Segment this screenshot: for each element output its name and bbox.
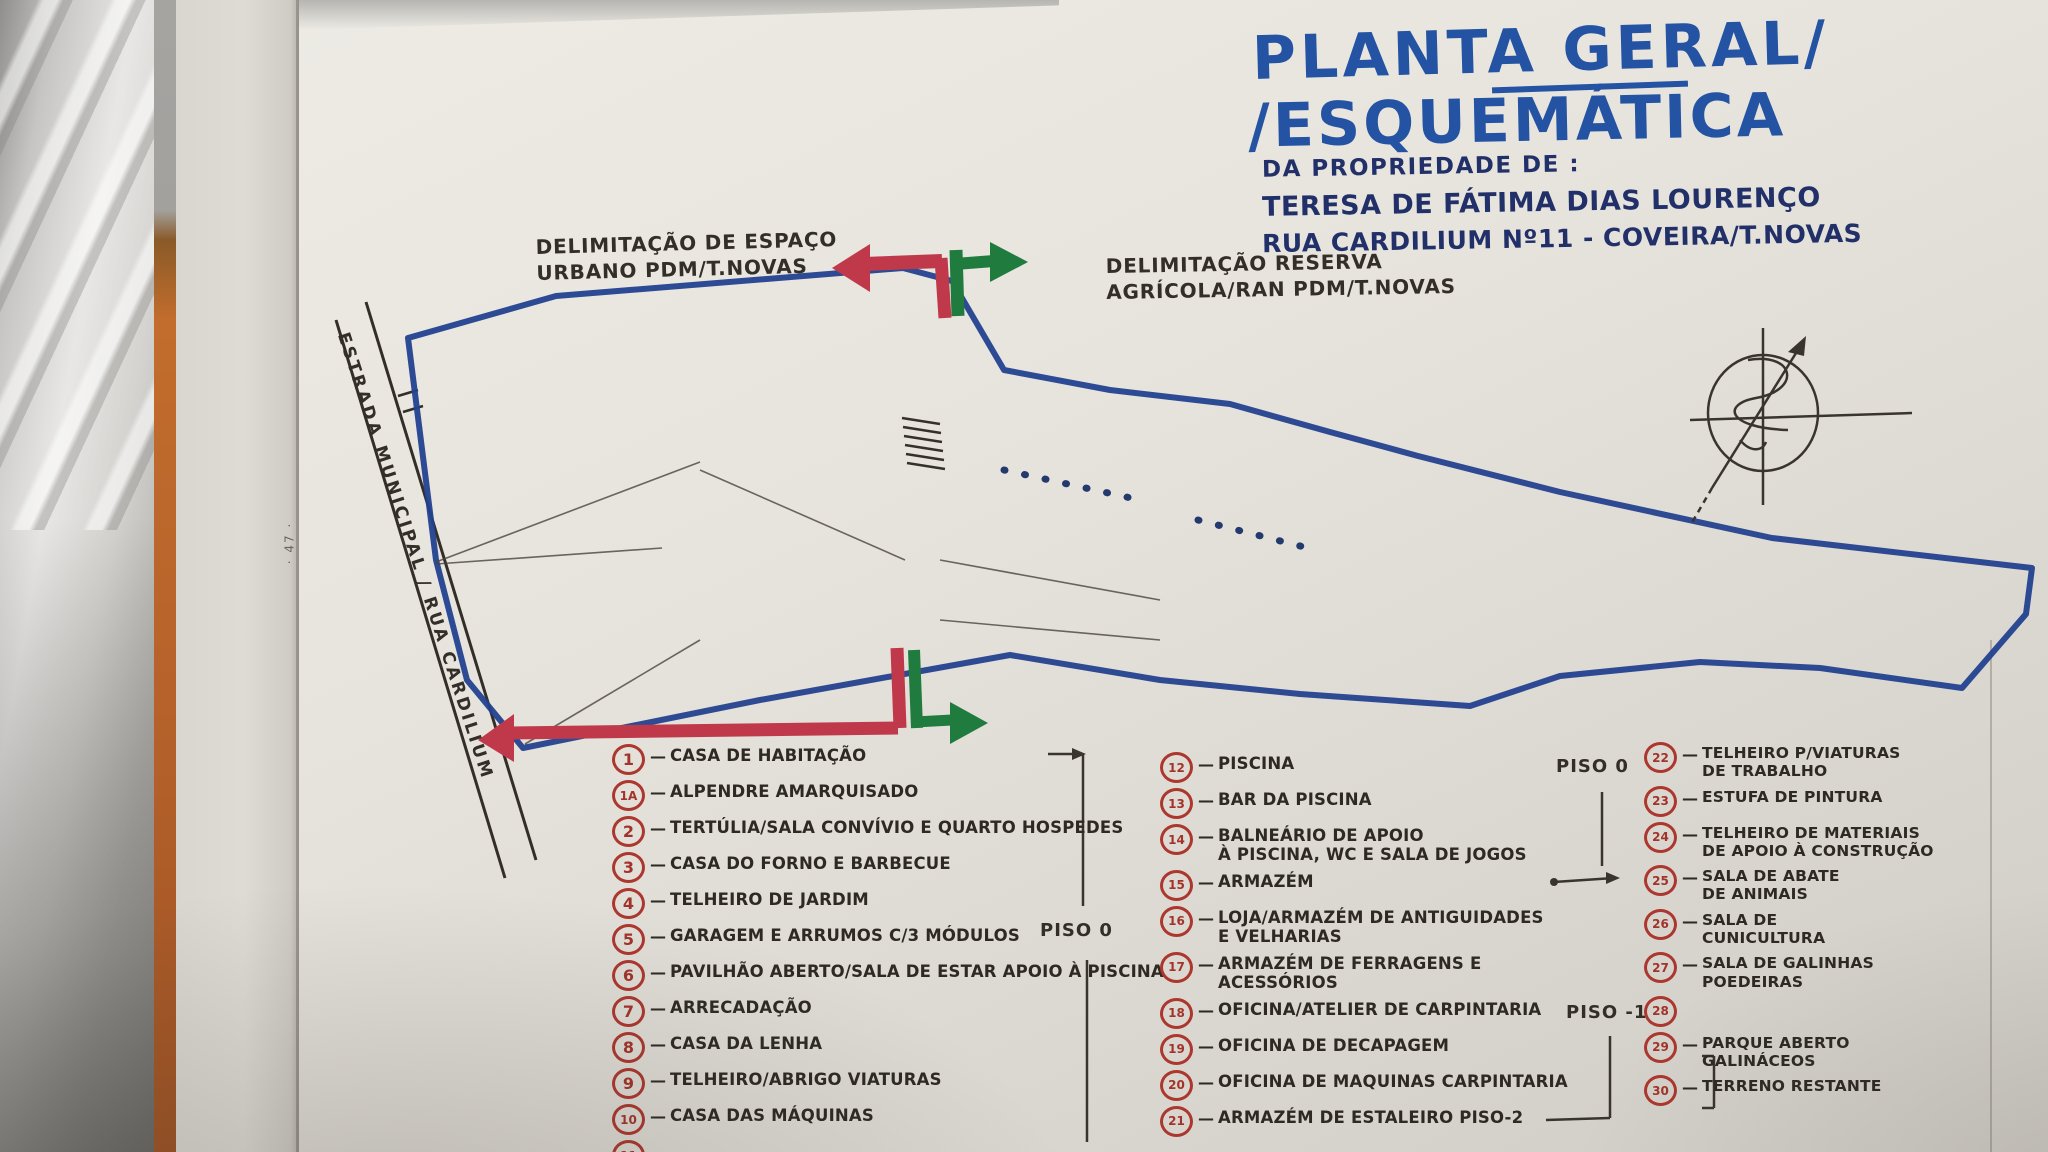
legend-dash: — [1198, 1070, 1214, 1095]
legend-item-27: 27—SALA DE GALINHAS POEDEIRAS [1644, 952, 2024, 991]
legend-item-20: 20—OFICINA DE MAQUINAS CARPINTARIA [1160, 1070, 1580, 1101]
legend-text: ARMAZÉM DE FERRAGENS E ACESSÓRIOS [1218, 952, 1580, 993]
legend-item-4: 4—TELHEIRO DE JARDIM [612, 888, 1172, 919]
legend-number: 27 [1644, 952, 1677, 983]
legend-number: 20 [1160, 1070, 1193, 1101]
legend-item-29: 29—PARQUE ABERTO GALINÁCEOS [1644, 1032, 2024, 1071]
legend-text: OFICINA DE DECAPAGEM [1218, 1034, 1449, 1055]
legend-number: 14 [1160, 824, 1193, 855]
legend-item-1: 1—CASA DE HABITAÇÃO [612, 744, 1172, 775]
legend-text: ALPENDRE AMARQUISADO [670, 780, 918, 801]
paper-stack-edge [176, 0, 300, 1152]
page-number: · 47 · [282, 522, 296, 565]
legend-text: ARMAZÉM DE ESTALEIRO PISO-2 [1218, 1106, 1523, 1127]
legend-item-12: 12—PISCINA [1160, 752, 1580, 783]
legend-text: BALNEÁRIO DE APOIO À PISCINA, WC E SALA … [1218, 824, 1527, 865]
binder-edge [154, 0, 176, 1152]
title-line-3: DA PROPRIEDADE DE : [1262, 151, 1580, 183]
legend-dash: — [1198, 952, 1214, 977]
legend-text: BAR DA PISCINA [1218, 788, 1372, 809]
legend-number: 29 [1644, 1032, 1677, 1063]
legend-number: 1A [612, 780, 645, 811]
legend-dash: — [650, 996, 666, 1021]
legend-text: TELHEIRO P/VIATURAS DE TRABALHO [1702, 742, 1901, 781]
legend-dash: — [650, 852, 666, 877]
legend-item-15: 15—ARMAZÉM [1160, 870, 1580, 901]
legend-text: LOJA/ARMAZÉM DE ANTIGUIDADES E VELHARIAS [1218, 906, 1544, 947]
legend-number: 18 [1160, 998, 1193, 1029]
legend-number: 7 [612, 996, 645, 1027]
legend-number: 2 [612, 816, 645, 847]
legend-text: CASA DA LENHA [670, 1032, 822, 1053]
legend-dash: — [650, 1104, 666, 1129]
legend-item-9: 9—TELHEIRO/ABRIGO VIATURAS [612, 1068, 1172, 1099]
legend-item-19: 19—OFICINA DE DECAPAGEM [1160, 1034, 1580, 1065]
legend-item-8: 8—CASA DA LENHA [612, 1032, 1172, 1063]
legend-item-21: 21—ARMAZÉM DE ESTALEIRO PISO-2 [1160, 1106, 1580, 1137]
legend-item-18: 18—OFICINA/ATELIER DE CARPINTARIA [1160, 998, 1580, 1029]
legend-number: 23 [1644, 786, 1677, 817]
legend-number: 15 [1160, 870, 1193, 901]
legend-text: TELHEIRO DE MATERIAIS DE APOIO À CONSTRU… [1702, 822, 1934, 861]
legend-number: 25 [1644, 865, 1677, 896]
legend-dash: — [1198, 1106, 1214, 1131]
legend-column-1: 1—CASA DE HABITAÇÃO1A—ALPENDRE AMARQUISA… [612, 744, 1172, 1152]
legend-item-26: 26—SALA DE CUNICULTURA [1644, 909, 2024, 948]
legend-number: 5 [612, 924, 645, 955]
legend-number: 10 [612, 1104, 645, 1135]
legend-item-13: 13—BAR DA PISCINA [1160, 788, 1580, 819]
legend-number: 13 [1160, 788, 1193, 819]
urban-limit-label: DELIMITAÇÃO DE ESPAÇO URBANO PDM/T.NOVAS [535, 226, 838, 286]
legend-item-1a: 1A—ALPENDRE AMARQUISADO [612, 780, 1172, 811]
legend-item-30: 30—TERRENO RESTANTE [1644, 1075, 2024, 1106]
marble-counter [0, 0, 154, 1152]
legend-item-28: 28 [1644, 996, 2024, 1027]
legend-dash: — [1682, 786, 1698, 811]
legend-dash: — [1682, 909, 1698, 934]
legend-dash: — [1682, 865, 1698, 890]
legend-number: 11 [612, 1140, 645, 1152]
legend-dash: — [1198, 1034, 1214, 1059]
legend-dash: — [1198, 998, 1214, 1023]
legend-number: 26 [1644, 909, 1677, 940]
legend-dash: — [1198, 788, 1214, 813]
legend-number: 28 [1644, 996, 1677, 1027]
legend-column-2: 12—PISCINA13—BAR DA PISCINA14—BALNEÁRIO … [1160, 752, 1580, 1142]
legend-text: TELHEIRO DE JARDIM [670, 888, 869, 909]
legend-dash: — [1682, 1032, 1698, 1057]
legend-dash: — [1682, 952, 1698, 977]
legend-text: OFICINA/ATELIER DE CARPINTARIA [1218, 998, 1541, 1019]
legend-number: 16 [1160, 906, 1193, 937]
legend-text: PAVILHÃO ABERTO/SALA DE ESTAR APOIO À PI… [670, 960, 1164, 981]
legend-text: SALA DE ABATE DE ANIMAIS [1702, 865, 1840, 904]
legend-text: GARAGEM E ARRUMOS C/3 MÓDULOS [670, 924, 1020, 945]
legend-text: ESTUFA DE PINTURA [1702, 786, 1883, 806]
legend-dash: — [1198, 752, 1214, 777]
legend-number: 24 [1644, 822, 1677, 853]
legend-number: 12 [1160, 752, 1193, 783]
legend-dash: — [650, 1068, 666, 1093]
legend-number: 8 [612, 1032, 645, 1063]
legend-item-7: 7—ARRECADAÇÃO [612, 996, 1172, 1027]
legend-text: TELHEIRO/ABRIGO VIATURAS [670, 1068, 942, 1089]
legend-dash: — [650, 888, 666, 913]
legend-number: 30 [1644, 1075, 1677, 1106]
legend-text: CASA DE HABITAÇÃO [670, 744, 866, 765]
legend-item-23: 23—ESTUFA DE PINTURA [1644, 786, 2024, 817]
legend-item-5: 5—GARAGEM E ARRUMOS C/3 MÓDULOS [612, 924, 1172, 955]
legend-text: CASA DO FORNO E BARBECUE [670, 852, 951, 873]
legend-dash: — [650, 1032, 666, 1057]
legend-item-2: 2—TERTÚLIA/SALA CONVÍVIO E QUARTO HOSPED… [612, 816, 1172, 847]
legend-dash: — [650, 780, 666, 805]
legend-number: 9 [612, 1068, 645, 1099]
legend-number: 1 [612, 744, 645, 775]
legend-text: SALA DE GALINHAS POEDEIRAS [1702, 952, 1874, 991]
legend-item-14: 14—BALNEÁRIO DE APOIO À PISCINA, WC E SA… [1160, 824, 1580, 865]
legend-item-11: 11 [612, 1140, 1172, 1152]
legend-text: OFICINA DE MAQUINAS CARPINTARIA [1218, 1070, 1568, 1091]
legend-text: ARMAZÉM [1218, 870, 1314, 891]
legend-dash: — [650, 960, 666, 985]
legend-text: PARQUE ABERTO GALINÁCEOS [1702, 1032, 1850, 1071]
legend-item-10: 10—CASA DAS MÁQUINAS [612, 1104, 1172, 1135]
legend-text: SALA DE CUNICULTURA [1702, 909, 1825, 948]
legend-item-17: 17—ARMAZÉM DE FERRAGENS E ACESSÓRIOS [1160, 952, 1580, 993]
legend-dash: — [1198, 870, 1214, 895]
legend-dash: — [1682, 742, 1698, 767]
legend-dash: — [1198, 824, 1214, 849]
legend-text: TERRENO RESTANTE [1702, 1075, 1882, 1095]
legend-item-24: 24—TELHEIRO DE MATERIAIS DE APOIO À CONS… [1644, 822, 2024, 861]
legend-item-22: 22—TELHEIRO P/VIATURAS DE TRABALHO [1644, 742, 2024, 781]
legend-text: TERTÚLIA/SALA CONVÍVIO E QUARTO HOSPEDES [670, 816, 1123, 837]
legend-dash: — [1682, 1075, 1698, 1100]
legend-number: 19 [1160, 1034, 1193, 1065]
legend-number: 21 [1160, 1106, 1193, 1137]
legend-item-6: 6—PAVILHÃO ABERTO/SALA DE ESTAR APOIO À … [612, 960, 1172, 991]
legend-dash: — [650, 744, 666, 769]
legend-dash: — [650, 924, 666, 949]
legend-number: 17 [1160, 952, 1193, 983]
legend-item-3: 3—CASA DO FORNO E BARBECUE [612, 852, 1172, 883]
legend-dash: — [650, 816, 666, 841]
legend-number: 4 [612, 888, 645, 919]
legend-number: 6 [612, 960, 645, 991]
photo-of-hand-drawn-plan: · 47 · [0, 0, 2048, 1152]
legend-number: 22 [1644, 742, 1677, 773]
legend-dash: — [1682, 822, 1698, 847]
legend-number: 3 [612, 852, 645, 883]
legend-column-3: 22—TELHEIRO P/VIATURAS DE TRABALHO23—EST… [1644, 742, 2024, 1111]
agricultural-limit-label: DELIMITAÇÃO RESERVA AGRÍCOLA/RAN PDM/T.N… [1106, 247, 1456, 305]
legend-text: CASA DAS MÁQUINAS [670, 1104, 874, 1125]
legend-dash: — [1198, 906, 1214, 931]
legend-text: PISCINA [1218, 752, 1294, 773]
legend-item-25: 25—SALA DE ABATE DE ANIMAIS [1644, 865, 2024, 904]
legend-item-16: 16—LOJA/ARMAZÉM DE ANTIGUIDADES E VELHAR… [1160, 906, 1580, 947]
legend-text: ARRECADAÇÃO [670, 996, 812, 1017]
